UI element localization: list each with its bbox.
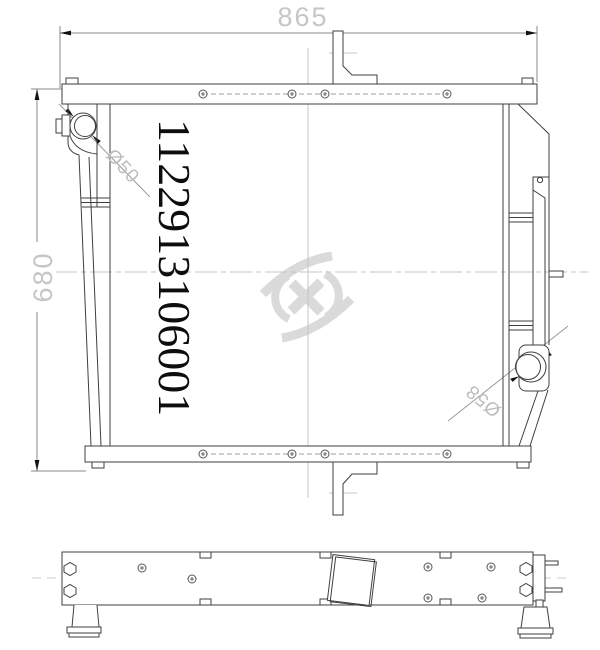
bottom-mounting-bracket [333, 462, 377, 515]
front-view [56, 31, 563, 515]
left-tank-ribs [81, 198, 110, 207]
watermark-swirl-logo-icon [263, 256, 351, 338]
tilted-bracket-plate [327, 555, 376, 607]
top-tank [62, 78, 537, 104]
top-mounting-bracket [333, 31, 377, 84]
outlet-pipe [516, 345, 550, 391]
drawing-linework [0, 0, 600, 650]
inlet-pipe [56, 113, 96, 139]
dimension-width-label: 865 [268, 2, 338, 33]
radiator-engineering-drawing: 865 680 Ø50 Ø58 1122913106001 [0, 0, 600, 650]
dimension-height-label: 680 [28, 242, 56, 312]
side-pin [549, 271, 563, 277]
dimension-width-865 [60, 26, 537, 88]
right-side-tank [509, 104, 563, 446]
part-number-text: 1122913106001 [149, 119, 197, 439]
inlet-pipe-bottom-view [67, 605, 101, 637]
outlet-pipe-bottom-view [518, 600, 553, 638]
centerlines [32, 48, 588, 578]
bottom-view [62, 552, 562, 638]
